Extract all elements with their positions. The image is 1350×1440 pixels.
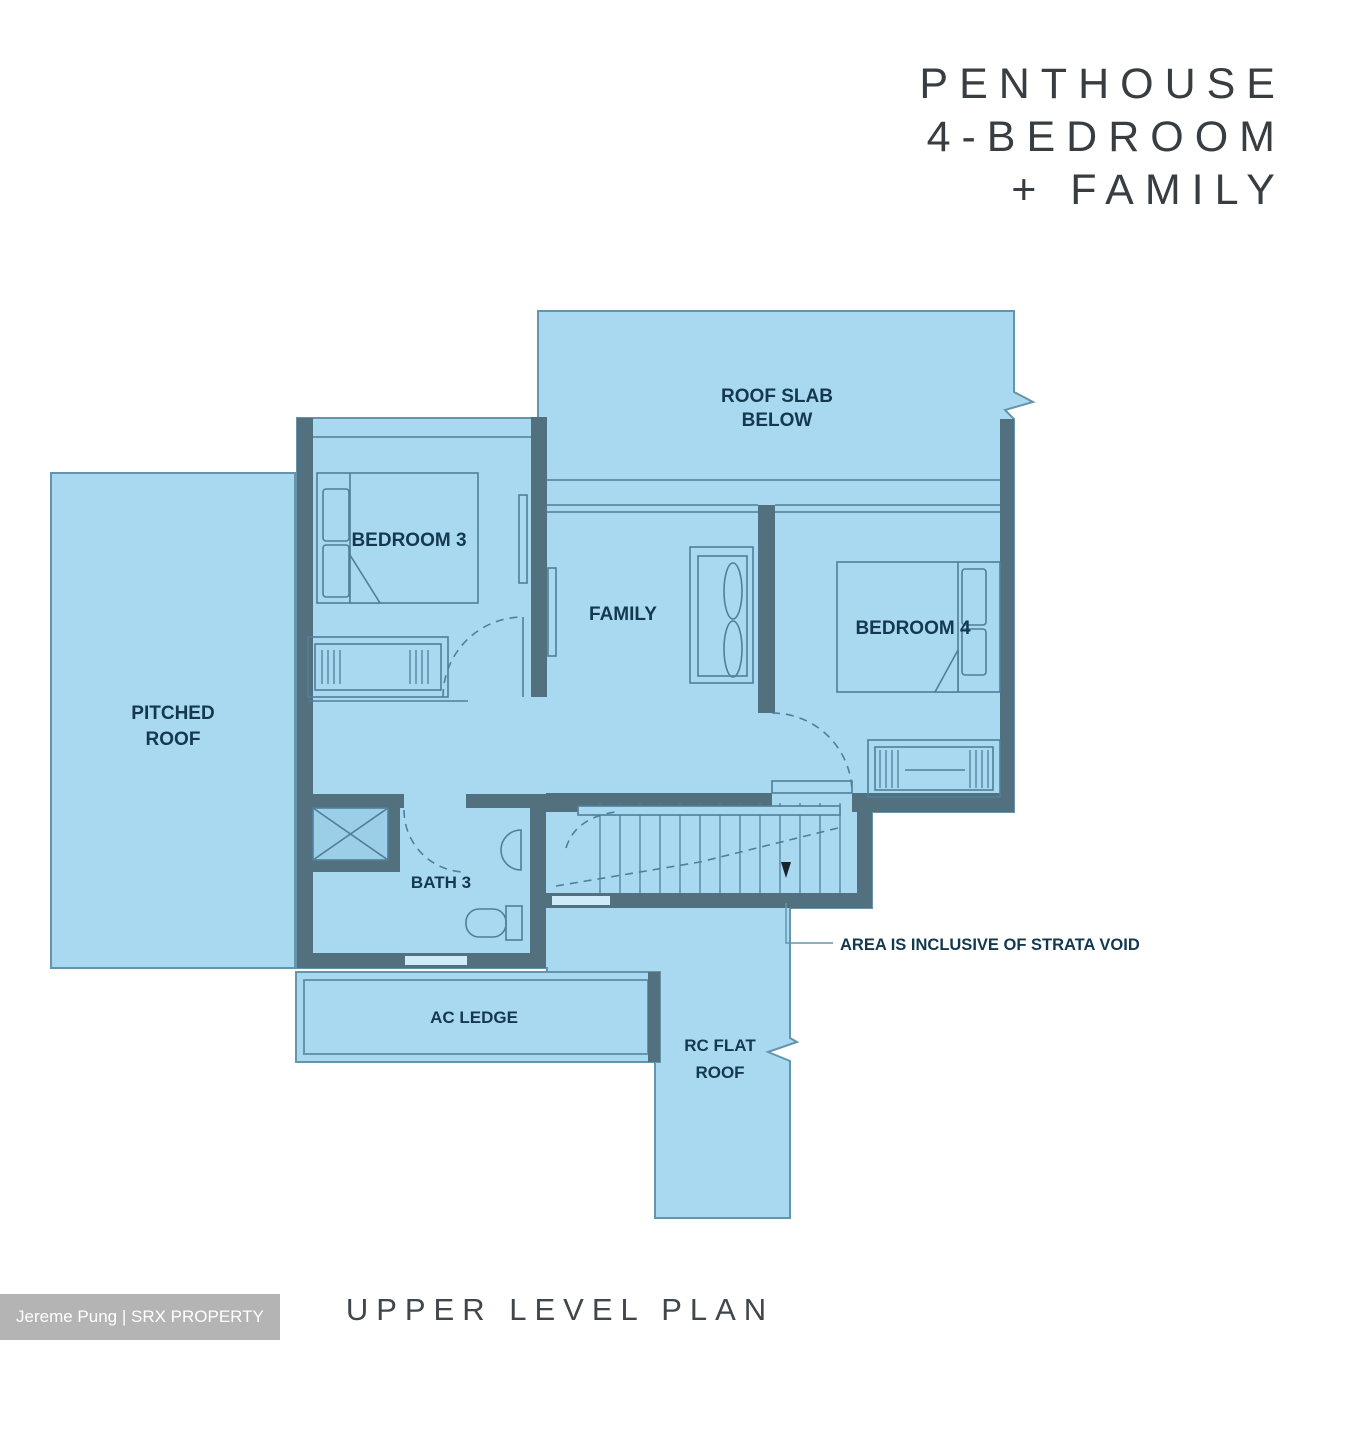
bath-window [405,956,467,965]
floorplan-drawing: AREA IS INCLUSIVE OF STRATA VOID ROOF SL… [0,0,1350,1440]
wall-acledge-rcroof [648,972,660,1062]
rc-flat-roof-label-line2: ROOF [695,1063,744,1082]
stairs-window [552,896,610,905]
main-floor-area [297,311,1033,1218]
roof-slab-label-line1: ROOF SLAB [721,386,833,407]
floorplan-page: PENTHOUSE 4-BEDROOM + FAMILY [0,0,1350,1440]
strata-void-note: AREA IS INCLUSIVE OF STRATA VOID [840,936,1140,954]
pitched-roof-label-line2: ROOF [146,729,201,750]
wall-bath-right [530,806,546,968]
stair-handrail [578,806,840,815]
rc-flat-roof-label-line1: RC FLAT [684,1036,756,1055]
family-label: FAMILY [589,604,657,625]
wall-stairs-right [857,812,872,908]
wall-bath-top-left [297,794,404,808]
wall-family-bedroom4 [758,505,775,713]
wall-bedroom3-right [531,417,547,697]
wall-shower-bottom [297,860,400,872]
wall-bedroom4-right [1000,419,1014,812]
pitched-roof-label-line1: PITCHED [131,703,214,724]
wall-bedroom4-bottom [852,793,1014,812]
bedroom4-label: BEDROOM 4 [855,618,971,639]
wall-left [297,418,313,968]
bedroom3-label: BEDROOM 3 [351,530,466,551]
roof-slab-label-line2: BELOW [742,410,813,431]
ac-ledge-label: AC LEDGE [430,1008,518,1027]
bath3-label: BATH 3 [411,873,471,892]
wall-bath-top-right [466,794,546,808]
watermark-badge: Jereme Pung | SRX PROPERTY [0,1294,280,1340]
